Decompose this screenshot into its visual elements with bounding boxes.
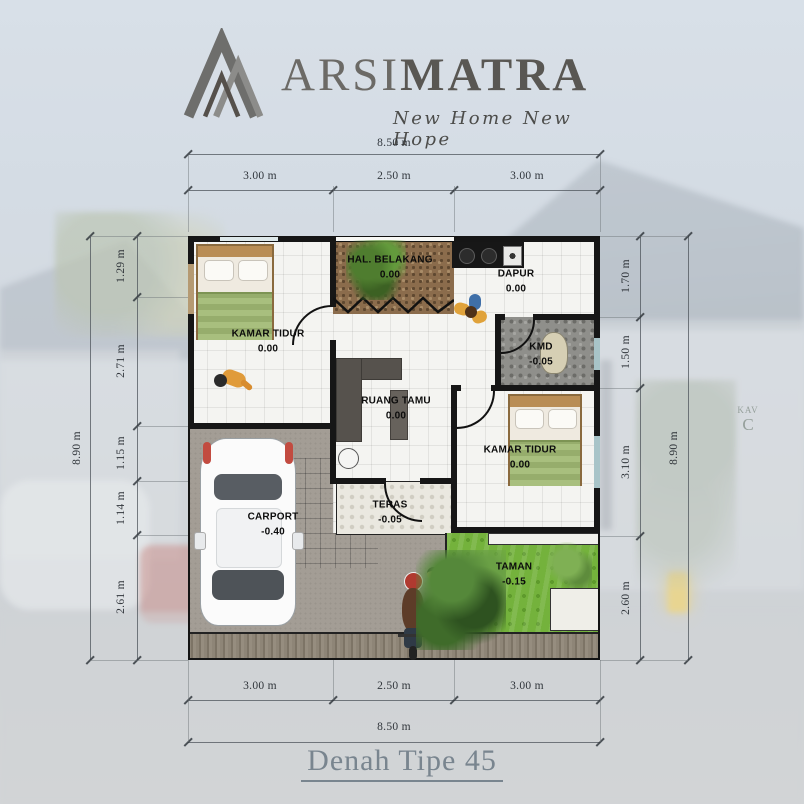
bed1-headboard bbox=[198, 246, 272, 257]
dim-left-seg5: 2.61 m bbox=[115, 580, 127, 614]
kav-sign-line2: C bbox=[726, 416, 770, 435]
extension-line bbox=[137, 535, 188, 536]
room-level: 0.00 bbox=[232, 342, 305, 357]
floor-plan: KAMAR TIDUR 0.00 HAL. BELAKANG 0.00 DAPU… bbox=[188, 236, 600, 660]
stove-burner-2 bbox=[481, 248, 497, 264]
dim-bottom-seg1: 3.00 m bbox=[243, 680, 277, 692]
extension-line bbox=[454, 660, 455, 700]
dim-top-seg3: 3.00 m bbox=[510, 170, 544, 182]
extension-line bbox=[454, 186, 455, 232]
wall-bedroom2-top-b bbox=[491, 385, 600, 391]
car-taillight-left bbox=[203, 442, 211, 464]
extension-line bbox=[600, 660, 688, 661]
plan-title: Denah Tipe 45 bbox=[301, 744, 503, 782]
brand-name-bold: MATRA bbox=[400, 49, 589, 101]
extension-line bbox=[333, 186, 334, 232]
room-level: 0.00 bbox=[498, 282, 535, 297]
dimline-bottom-segments bbox=[188, 700, 600, 701]
car-mirror-left bbox=[194, 532, 206, 550]
extension-line bbox=[137, 426, 188, 427]
room-name: TAMAN bbox=[496, 561, 532, 576]
room-name: RUANG TAMU bbox=[361, 395, 431, 410]
dim-right-seg2: 1.50 m bbox=[620, 335, 632, 369]
extension-line bbox=[137, 481, 188, 482]
kitchen-sink bbox=[503, 246, 522, 266]
dim-right-overall: 8.90 m bbox=[668, 431, 680, 465]
room-level: -0.05 bbox=[373, 513, 408, 528]
dimline-bottom-overall bbox=[188, 742, 600, 743]
sofa-side bbox=[336, 358, 362, 442]
dimline-left-segments bbox=[137, 236, 138, 660]
label-taman: TAMAN -0.15 bbox=[496, 561, 532, 590]
person-dapur bbox=[454, 294, 488, 330]
dim-top-seg1: 3.00 m bbox=[243, 170, 277, 182]
extension-line bbox=[333, 660, 334, 700]
extension-line bbox=[600, 154, 601, 232]
label-ruang-tamu: RUANG TAMU 0.00 bbox=[361, 395, 431, 424]
bedroom1-top-window bbox=[220, 237, 278, 241]
dim-top-seg2: 2.50 m bbox=[377, 170, 411, 182]
room-level: 0.00 bbox=[361, 409, 431, 424]
dim-left-overall: 8.90 m bbox=[71, 431, 83, 465]
kitchen-counter bbox=[452, 242, 524, 268]
room-name: DAPUR bbox=[498, 268, 535, 283]
bed2-headboard bbox=[510, 396, 580, 407]
extension-line bbox=[188, 660, 189, 742]
dim-top-overall: 8.50 m bbox=[377, 137, 411, 149]
person1-legs bbox=[240, 379, 254, 392]
brand-tagline: New Home New Hope bbox=[393, 108, 635, 150]
label-hal-belakang: HAL. BELAKANG 0.00 bbox=[347, 254, 432, 283]
extension-line bbox=[600, 236, 688, 237]
extension-line bbox=[137, 297, 188, 298]
extension-line bbox=[600, 317, 640, 318]
room-name: HAL. BELAKANG bbox=[347, 254, 432, 269]
plant-taman-right bbox=[546, 542, 592, 588]
bed1-pillow-left bbox=[204, 260, 234, 281]
brand-name-light: ARSI bbox=[281, 49, 400, 101]
logo-block: ARSIMATRA New Home New Hope bbox=[175, 20, 635, 138]
wall-bedroom1-bottom bbox=[188, 423, 336, 429]
room-level: -0.40 bbox=[248, 525, 299, 540]
dimline-right-segments bbox=[640, 236, 641, 660]
stove-burner-1 bbox=[459, 248, 475, 264]
label-kmd: KMD -0.05 bbox=[529, 341, 553, 370]
dim-bottom-seg2: 2.50 m bbox=[377, 680, 411, 692]
kmd-window bbox=[594, 338, 600, 370]
kav-sign: KAV C bbox=[726, 406, 770, 435]
room-level: -0.15 bbox=[496, 575, 532, 590]
dim-left-seg3: 1.15 m bbox=[115, 436, 127, 470]
extension-line bbox=[600, 660, 601, 742]
car-rear-window bbox=[214, 474, 282, 500]
bedroom1-side-window bbox=[188, 264, 194, 314]
car-taillight-right bbox=[285, 442, 293, 464]
extension-line bbox=[600, 536, 640, 537]
wall-teras-top-a bbox=[330, 478, 386, 484]
room-name: KAMAR TIDUR bbox=[232, 328, 305, 343]
dim-right-seg3: 3.10 m bbox=[620, 445, 632, 479]
dim-left-seg1: 1.29 m bbox=[115, 249, 127, 283]
wall-kmd-top-b bbox=[533, 314, 600, 320]
logo-mountain-icon bbox=[183, 28, 275, 124]
dimline-top-segments bbox=[188, 190, 600, 191]
room-name: CARPORT bbox=[248, 511, 299, 526]
dim-left-seg4: 1.14 m bbox=[115, 491, 127, 525]
bed2-pillow-right bbox=[548, 409, 577, 429]
room-name: TERAS bbox=[373, 499, 408, 514]
dim-left-seg2: 2.71 m bbox=[115, 344, 127, 378]
label-bedroom1: KAMAR TIDUR 0.00 bbox=[232, 328, 305, 357]
bed-bedroom1 bbox=[196, 244, 274, 340]
bush-taman-left bbox=[416, 550, 506, 650]
label-bedroom2: KAMAR TIDUR 0.00 bbox=[484, 444, 557, 473]
dim-bottom-seg3: 3.00 m bbox=[510, 680, 544, 692]
brand-name: ARSIMATRA bbox=[281, 48, 589, 102]
plan-title-wrap: Denah Tipe 45 bbox=[0, 744, 804, 782]
dimline-top-overall bbox=[188, 154, 600, 155]
dim-right-seg1: 1.70 m bbox=[620, 259, 632, 293]
person2-head bbox=[465, 306, 477, 318]
car-windshield bbox=[212, 570, 284, 600]
dim-bottom-overall: 8.50 m bbox=[377, 721, 411, 733]
label-dapur: DAPUR 0.00 bbox=[498, 268, 535, 297]
bed2-pillow-left bbox=[515, 409, 544, 429]
dim-right-seg4: 2.60 m bbox=[620, 581, 632, 615]
extension-line bbox=[90, 236, 188, 237]
wall-bedroom2-bottom bbox=[451, 527, 600, 533]
poster-page: KAV C ARSIMATRA New Home New Hope 8.50 m… bbox=[0, 0, 804, 804]
extension-line bbox=[600, 388, 640, 389]
dimline-right-overall bbox=[688, 236, 689, 660]
extension-line bbox=[90, 660, 188, 661]
person1-head bbox=[214, 374, 227, 387]
extension-line bbox=[188, 154, 189, 232]
dimline-left-overall bbox=[90, 236, 91, 660]
room-name: KMD bbox=[529, 341, 553, 356]
bedroom2-window bbox=[594, 436, 600, 488]
person-bedroom1 bbox=[214, 364, 252, 398]
room-level: 0.00 bbox=[484, 458, 557, 473]
label-carport: CARPORT -0.40 bbox=[248, 511, 299, 540]
room-level: -0.05 bbox=[529, 355, 553, 370]
label-teras: TERAS -0.05 bbox=[373, 499, 408, 528]
stool bbox=[338, 448, 359, 469]
bed1-pillow-right bbox=[238, 260, 268, 281]
room-name: KAMAR TIDUR bbox=[484, 444, 557, 459]
room-level: 0.00 bbox=[347, 268, 432, 283]
